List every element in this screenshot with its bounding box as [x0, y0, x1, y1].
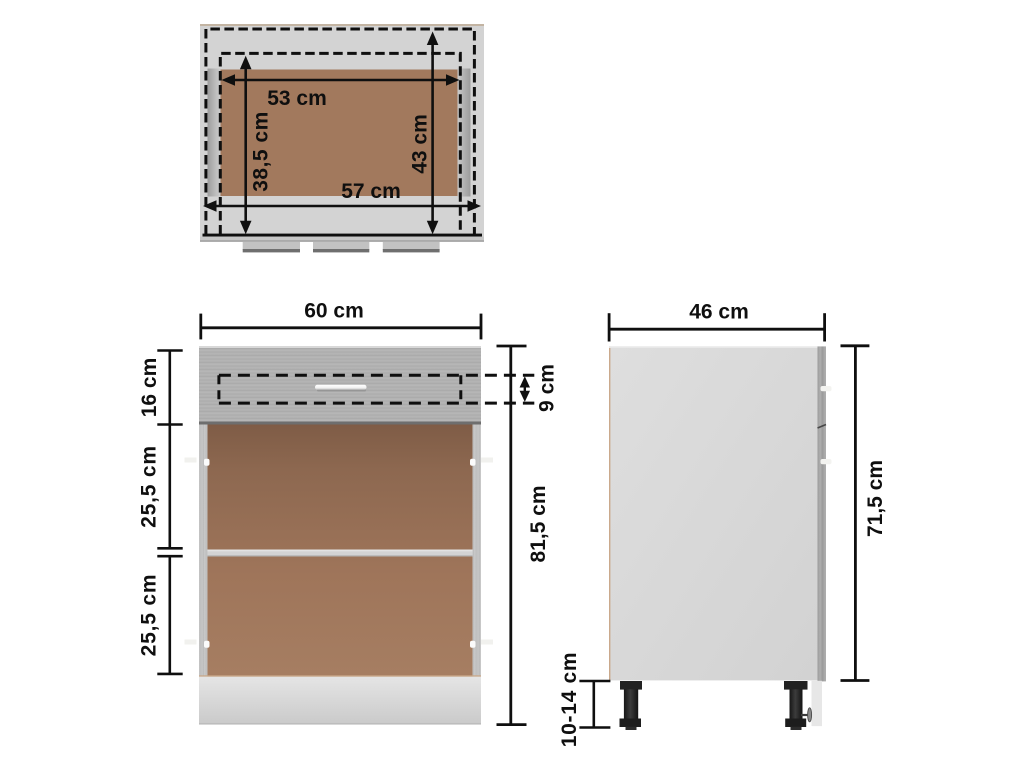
svg-text:81,5 cm: 81,5 cm	[527, 485, 550, 562]
svg-text:57 cm: 57 cm	[341, 180, 401, 203]
svg-text:10-14 cm: 10-14 cm	[558, 652, 581, 748]
svg-text:9 cm: 9 cm	[536, 364, 559, 412]
svg-text:25,5 cm: 25,5 cm	[138, 445, 161, 528]
svg-text:60 cm: 60 cm	[304, 300, 364, 323]
svg-text:46 cm: 46 cm	[689, 301, 749, 324]
svg-text:16 cm: 16 cm	[138, 358, 161, 418]
svg-text:53 cm: 53 cm	[267, 87, 327, 110]
svg-text:25,5 cm: 25,5 cm	[138, 574, 161, 657]
svg-text:71,5 cm: 71,5 cm	[864, 460, 887, 537]
svg-text:43 cm: 43 cm	[409, 114, 432, 174]
svg-text:38,5 cm: 38,5 cm	[250, 111, 273, 192]
